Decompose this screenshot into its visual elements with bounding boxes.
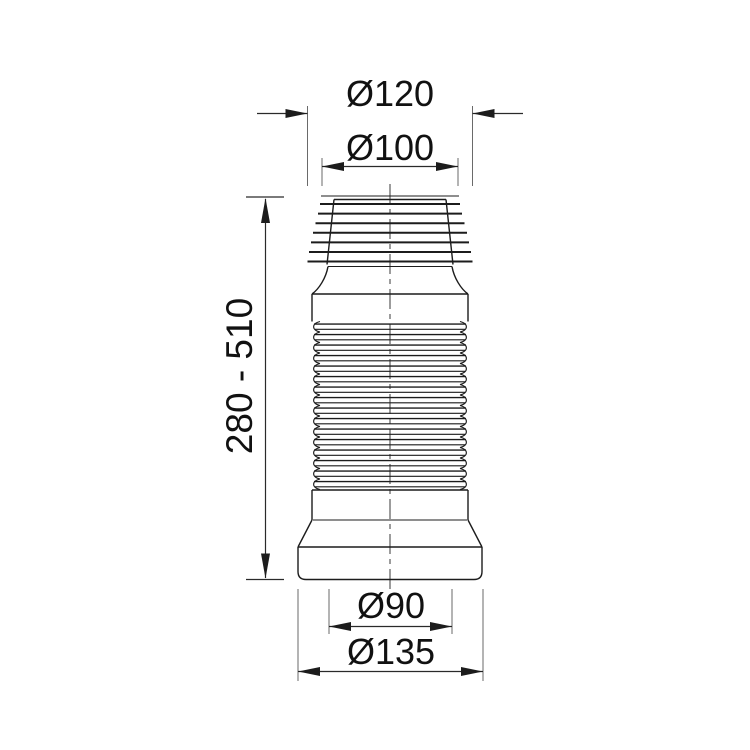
label-top-outer-diameter: Ø120 bbox=[346, 73, 434, 114]
drawing-canvas: Ø120 Ø100 280 - 510 Ø90 bbox=[0, 0, 750, 750]
dimension-top-inner: Ø100 bbox=[322, 127, 458, 186]
label-top-inner-diameter: Ø100 bbox=[346, 127, 434, 168]
label-bottom-outer-diameter: Ø135 bbox=[347, 631, 435, 672]
arrow-down-icon bbox=[261, 554, 270, 579]
dimension-height-range: 280 - 510 bbox=[219, 197, 284, 580]
part-outline bbox=[298, 196, 482, 580]
arrow-right-icon bbox=[436, 162, 458, 171]
arrow-right-icon bbox=[461, 667, 483, 676]
technical-drawing: Ø120 Ø100 280 - 510 Ø90 bbox=[0, 0, 750, 750]
arrow-left-icon bbox=[286, 109, 308, 118]
arrow-right-icon bbox=[473, 109, 495, 118]
arrow-left-icon bbox=[329, 622, 351, 631]
dimension-bottom-inner: Ø90 bbox=[329, 585, 452, 634]
arrow-right-icon bbox=[430, 622, 452, 631]
label-bottom-inner-diameter: Ø90 bbox=[357, 585, 425, 626]
label-height-range: 280 - 510 bbox=[219, 298, 260, 454]
arrow-left-icon bbox=[298, 667, 320, 676]
arrow-left-icon bbox=[322, 162, 344, 171]
arrow-up-icon bbox=[261, 198, 270, 223]
